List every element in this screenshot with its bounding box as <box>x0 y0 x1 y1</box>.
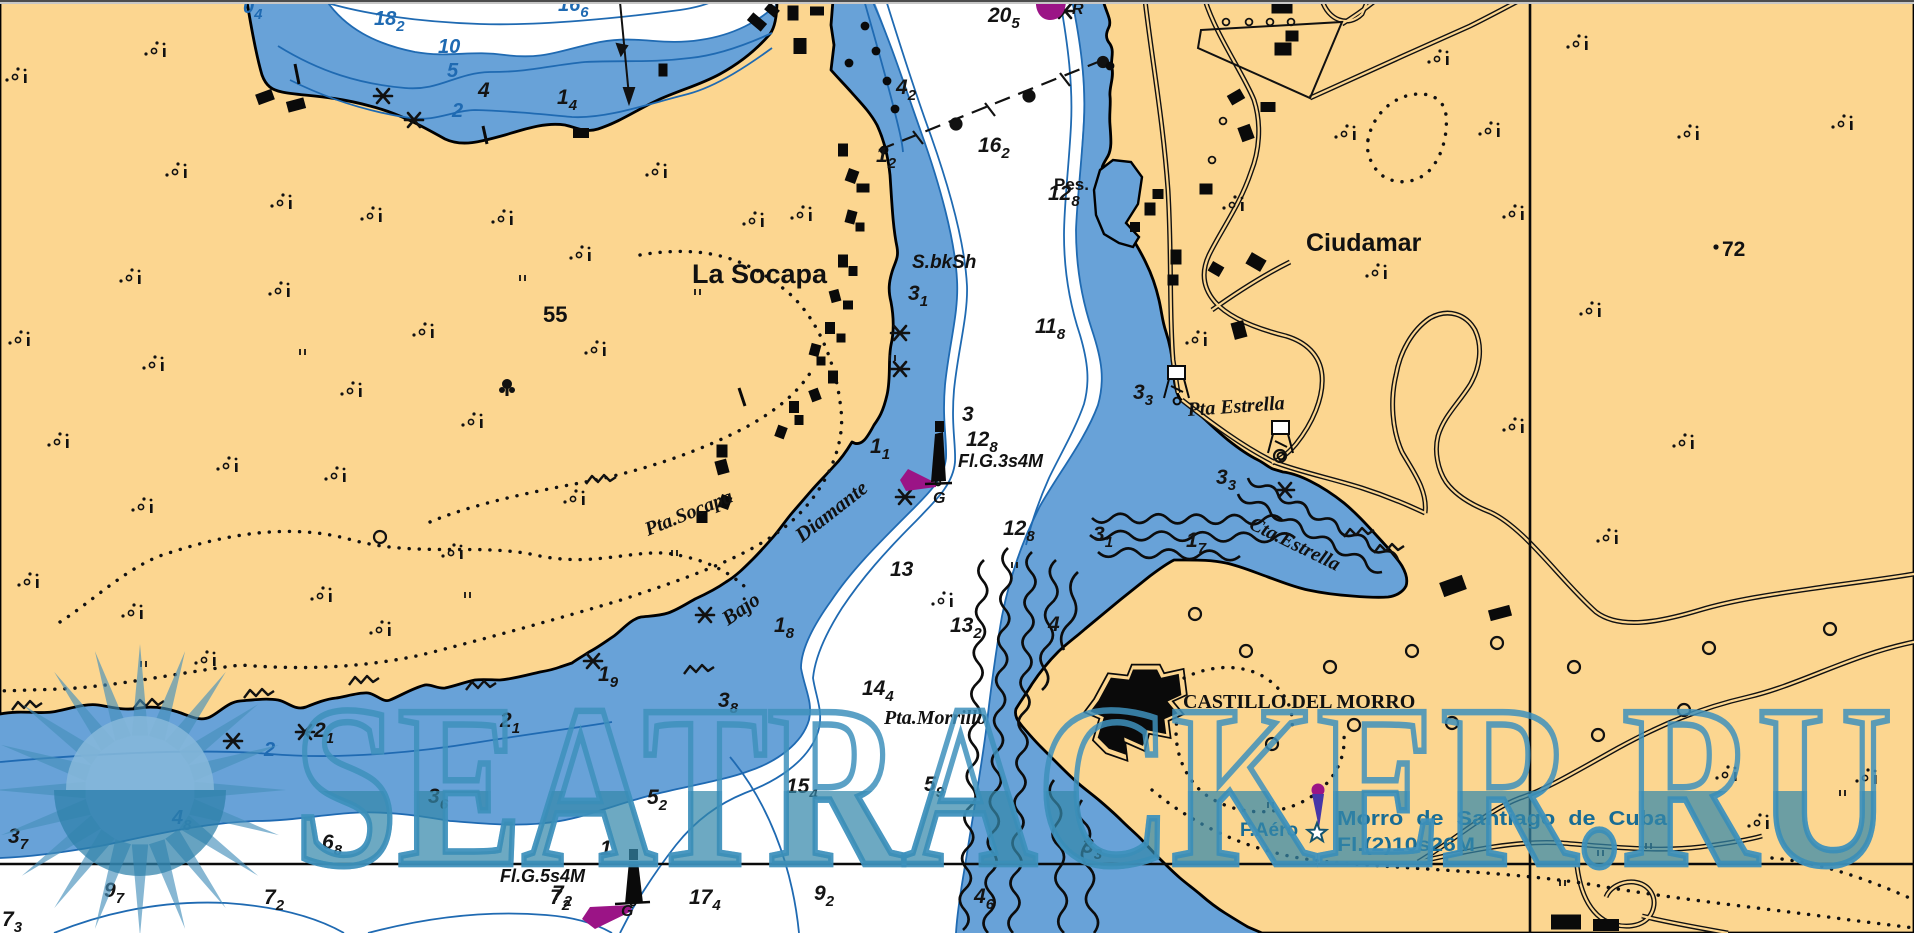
svg-text:55: 55 <box>543 302 567 327</box>
svg-text:2: 2 <box>451 100 463 122</box>
svg-text:72: 72 <box>1722 238 1745 261</box>
svg-text:Ciudamar: Ciudamar <box>1306 229 1422 257</box>
svg-text:S.bkSh: S.bkSh <box>912 252 976 273</box>
svg-text:G: G <box>933 490 945 507</box>
svg-text:10: 10 <box>438 36 460 58</box>
svg-text:4: 4 <box>477 79 490 102</box>
svg-text:3: 3 <box>962 403 974 426</box>
svg-text:5: 5 <box>447 60 459 82</box>
svg-text:Fl.G.3s4M: Fl.G.3s4M <box>958 451 1044 471</box>
svg-text:La Socapa: La Socapa <box>692 259 828 289</box>
svg-text:13: 13 <box>890 558 914 581</box>
svg-text:Pes.: Pes. <box>1054 175 1089 194</box>
svg-text:4: 4 <box>1047 613 1060 636</box>
